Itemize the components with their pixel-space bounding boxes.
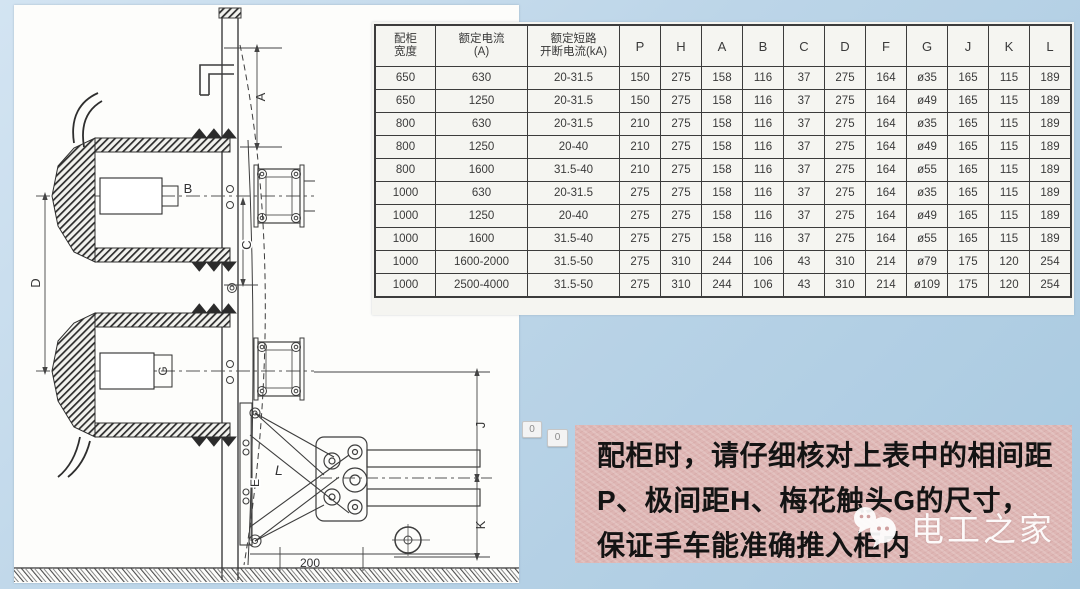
cell: ø55 [907, 228, 948, 251]
cell: ø49 [907, 90, 948, 113]
cell: 275 [620, 251, 661, 274]
cell: 275 [825, 113, 866, 136]
cell: 310 [825, 274, 866, 297]
cell: 116 [743, 228, 784, 251]
spec-table: 配柜宽度额定电流(A)额定短路开断电流(kA)PHABCDFGJKL 65063… [375, 25, 1071, 297]
cell: ø109 [907, 274, 948, 297]
cell: 164 [866, 113, 907, 136]
cell: 275 [825, 136, 866, 159]
cell: 2500-4000 [436, 274, 528, 297]
cell: 115 [989, 159, 1030, 182]
lower-mounting-strip [58, 437, 80, 477]
lower-arm-bar [367, 489, 480, 506]
cell: 189 [1030, 67, 1071, 90]
dim-label-l: L [275, 462, 283, 478]
note-box: 配柜时，请仔细核对上表中的相间距 P、极间距H、梅花触头G的尺寸， 保证手车能准… [575, 425, 1072, 563]
cell: 150 [620, 90, 661, 113]
cell: 275 [661, 205, 702, 228]
cell: 630 [436, 182, 528, 205]
top-hook-bracket [200, 65, 234, 95]
cell: 1600 [436, 159, 528, 182]
lower-bushing [36, 304, 314, 477]
cell: 275 [661, 159, 702, 182]
cell: 275 [825, 159, 866, 182]
cell: 275 [825, 228, 866, 251]
lower-bushing-ribs-bottom [192, 437, 236, 446]
cell: 106 [743, 251, 784, 274]
cell: 115 [989, 182, 1030, 205]
cell: 189 [1030, 228, 1071, 251]
cell: 165 [948, 182, 989, 205]
cell: 1600-2000 [436, 251, 528, 274]
cell: 210 [620, 113, 661, 136]
table-row: 800125020-4021027515811637275164ø4916511… [376, 136, 1071, 159]
cell: 158 [702, 182, 743, 205]
cell: 165 [948, 136, 989, 159]
col-header: J [948, 26, 989, 67]
cell: 115 [989, 67, 1030, 90]
cell: 275 [825, 67, 866, 90]
cell: ø49 [907, 136, 948, 159]
dim-label-b: B [184, 181, 193, 196]
cell: 37 [784, 182, 825, 205]
cell: 275 [661, 113, 702, 136]
col-header: 额定电流(A) [436, 26, 528, 67]
cell: 31.5-40 [528, 228, 620, 251]
dim-label-a: A [253, 92, 268, 101]
cell: 165 [948, 113, 989, 136]
watermark-label: 电工之家 [911, 503, 1055, 551]
dim-label-j: J [473, 422, 488, 429]
counter-badge-1: 0 [522, 421, 542, 438]
upper-arm-bar [367, 450, 480, 467]
col-header: F [866, 26, 907, 67]
cell: 31.5-40 [528, 159, 620, 182]
cell: 43 [784, 251, 825, 274]
cell: 158 [702, 113, 743, 136]
cell: 1250 [436, 90, 528, 113]
table-row: 10001600-200031.5-5027531024410643310214… [376, 251, 1071, 274]
cell: 275 [825, 90, 866, 113]
lower-contact-block [100, 353, 154, 389]
note-line-1: 配柜时，请仔细核对上表中的相间距 [597, 433, 1072, 478]
table-row: 800160031.5-4021027515811637275164ø55165… [376, 159, 1071, 182]
cell: ø79 [907, 251, 948, 274]
cell: 37 [784, 228, 825, 251]
wechat-icon [851, 504, 903, 550]
cell: 158 [702, 90, 743, 113]
cell: 116 [743, 90, 784, 113]
cell: 115 [989, 205, 1030, 228]
cell: 275 [620, 205, 661, 228]
cell: 115 [989, 90, 1030, 113]
cell: 275 [620, 228, 661, 251]
dim-label-d: D [28, 278, 43, 287]
col-header: K [989, 26, 1030, 67]
table-row: 10002500-400031.5-5027531024410643310214… [376, 274, 1071, 297]
cell: 158 [702, 159, 743, 182]
cell: 275 [661, 182, 702, 205]
cell: 115 [989, 113, 1030, 136]
table-row: 1000160031.5-4027527515811637275164ø5516… [376, 228, 1071, 251]
cell: 116 [743, 182, 784, 205]
cell: 175 [948, 274, 989, 297]
cell: 116 [743, 67, 784, 90]
cell: 175 [948, 251, 989, 274]
col-header: A [702, 26, 743, 67]
cell: 189 [1030, 90, 1071, 113]
counter-badge-2: 0 [547, 429, 568, 447]
cell: 189 [1030, 205, 1071, 228]
cell: 244 [702, 274, 743, 297]
page-background: A B C D E G L [0, 0, 1080, 589]
guide-wheel [392, 524, 430, 556]
cell: 164 [866, 182, 907, 205]
cell: 254 [1030, 274, 1071, 297]
upper-contact-block [100, 178, 162, 214]
cell: 37 [784, 159, 825, 182]
cell: 214 [866, 274, 907, 297]
cell: 650 [376, 67, 436, 90]
col-header: P [620, 26, 661, 67]
watermark: 电工之家 [851, 503, 1055, 551]
cell: 1000 [376, 182, 436, 205]
cell: 800 [376, 159, 436, 182]
dim-label-c: C [239, 240, 254, 249]
cell: 158 [702, 67, 743, 90]
cell: 275 [661, 67, 702, 90]
cell: 165 [948, 90, 989, 113]
cell: 1000 [376, 274, 436, 297]
cell: 310 [825, 251, 866, 274]
cell: 158 [702, 136, 743, 159]
cell: 189 [1030, 182, 1071, 205]
cell: ø35 [907, 113, 948, 136]
cell: 275 [661, 228, 702, 251]
cell: 31.5-50 [528, 274, 620, 297]
cell: 115 [989, 228, 1030, 251]
cell: 20-40 [528, 205, 620, 228]
cell: ø35 [907, 67, 948, 90]
col-header: G [907, 26, 948, 67]
cell: 116 [743, 136, 784, 159]
cell: 116 [743, 205, 784, 228]
col-header: B [743, 26, 784, 67]
col-header: D [825, 26, 866, 67]
cell: 158 [702, 228, 743, 251]
dim-label-g: G [156, 366, 170, 375]
cell: 164 [866, 136, 907, 159]
cell: 630 [436, 67, 528, 90]
cell: 189 [1030, 113, 1071, 136]
cell: 31.5-50 [528, 251, 620, 274]
table-row: 65063020-31.515027515811637275164ø351651… [376, 67, 1071, 90]
cell: 214 [866, 251, 907, 274]
upper-bushing-ribs-top [192, 129, 236, 138]
cell: 1250 [436, 136, 528, 159]
upper-flange [227, 165, 316, 293]
cell: 43 [784, 274, 825, 297]
cell: 1600 [436, 228, 528, 251]
cell: 165 [948, 67, 989, 90]
cell: 165 [948, 205, 989, 228]
cell: 275 [661, 136, 702, 159]
cell: 120 [989, 274, 1030, 297]
cell: 189 [1030, 159, 1071, 182]
cell: 165 [948, 228, 989, 251]
cell: 254 [1030, 251, 1071, 274]
cell: 116 [743, 113, 784, 136]
cell: ø35 [907, 182, 948, 205]
cell: 164 [866, 90, 907, 113]
table-row: 650125020-31.515027515811637275164ø49165… [376, 90, 1071, 113]
col-header: 额定短路开断电流(kA) [528, 26, 620, 67]
cell: 1000 [376, 205, 436, 228]
cell: 310 [661, 251, 702, 274]
cell: 164 [866, 159, 907, 182]
cell: 164 [866, 67, 907, 90]
cell: 106 [743, 274, 784, 297]
col-header: 配柜宽度 [376, 26, 436, 67]
cell: 275 [661, 90, 702, 113]
spec-table-paper: 配柜宽度额定电流(A)额定短路开断电流(kA)PHABCDFGJKL 65063… [372, 22, 1074, 315]
cell: 20-31.5 [528, 182, 620, 205]
cell: 210 [620, 159, 661, 182]
cell: 165 [948, 159, 989, 182]
cell: 37 [784, 113, 825, 136]
cell: 20-31.5 [528, 113, 620, 136]
table-row: 1000125020-4027527515811637275164ø491651… [376, 205, 1071, 228]
cell: 275 [825, 205, 866, 228]
cell: 310 [661, 274, 702, 297]
cell: 20-40 [528, 136, 620, 159]
cell: ø49 [907, 205, 948, 228]
table-row: 80063020-31.521027515811637275164ø351651… [376, 113, 1071, 136]
lower-bushing-ribs-top [192, 304, 236, 313]
dim-label-k: K [473, 520, 488, 529]
spec-table-header-row: 配柜宽度额定电流(A)额定短路开断电流(kA)PHABCDFGJKL [376, 26, 1071, 67]
cell: 1000 [376, 251, 436, 274]
table-row: 100063020-31.527527515811637275164ø35165… [376, 182, 1071, 205]
upper-bushing-ribs-bottom [192, 262, 236, 271]
ground-hatch [14, 568, 519, 582]
cell: 1000 [376, 228, 436, 251]
cell: 650 [376, 90, 436, 113]
cell: 37 [784, 67, 825, 90]
cell: 115 [989, 136, 1030, 159]
cell: 1250 [436, 205, 528, 228]
spec-table-body: 65063020-31.515027515811637275164ø351651… [376, 67, 1071, 297]
cell: 800 [376, 136, 436, 159]
dim-label-e: E [248, 479, 262, 487]
cell: 630 [436, 113, 528, 136]
cell: 800 [376, 113, 436, 136]
cell: 164 [866, 205, 907, 228]
cell: 20-31.5 [528, 67, 620, 90]
cell: 164 [866, 228, 907, 251]
cell: 150 [620, 67, 661, 90]
col-header: L [1030, 26, 1071, 67]
cell: 158 [702, 205, 743, 228]
cell: 37 [784, 205, 825, 228]
col-header: H [661, 26, 702, 67]
cell: 120 [989, 251, 1030, 274]
cell: 244 [702, 251, 743, 274]
cell: 275 [825, 182, 866, 205]
cell: 210 [620, 136, 661, 159]
cell: ø55 [907, 159, 948, 182]
upper-bushing [36, 93, 314, 271]
cell: 37 [784, 136, 825, 159]
cell: 20-31.5 [528, 90, 620, 113]
cell: 275 [620, 274, 661, 297]
cell: 37 [784, 90, 825, 113]
cell: 275 [620, 182, 661, 205]
cell: 189 [1030, 136, 1071, 159]
col-header: C [784, 26, 825, 67]
cell: 116 [743, 159, 784, 182]
